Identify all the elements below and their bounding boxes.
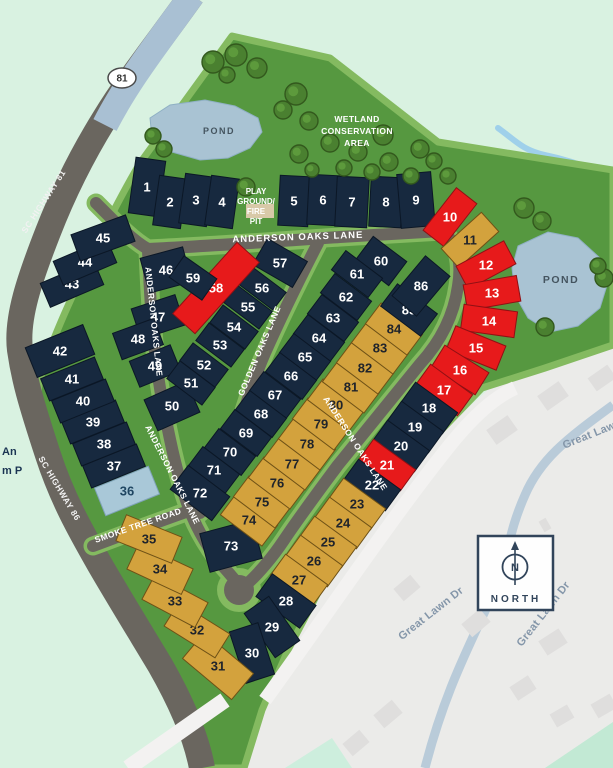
pond-right-label: POND	[543, 274, 579, 286]
north-label: NORTH	[491, 594, 542, 605]
tree-highlight-icon	[303, 115, 311, 123]
lot-number: 28	[279, 594, 293, 609]
north-arrow: N NORTH	[478, 536, 553, 610]
lot-number: 25	[321, 535, 335, 550]
lot-number: 38	[97, 437, 111, 452]
lot-number: 81	[344, 380, 358, 395]
lot-number: 29	[265, 620, 279, 635]
lot-7[interactable]: 7	[335, 176, 370, 228]
lot-number: 70	[223, 445, 237, 460]
lot-number: 7	[348, 195, 355, 210]
shield-number: 81	[116, 74, 128, 85]
tree-highlight-icon	[428, 155, 435, 162]
lot-number: 15	[469, 341, 483, 356]
tree-highlight-icon	[517, 201, 526, 210]
compass-n-letter: N	[511, 562, 519, 574]
svg-text:FIRE: FIRE	[247, 207, 266, 216]
highway-81-shield-icon: 81	[108, 68, 136, 88]
tree-highlight-icon	[405, 170, 412, 177]
tree-highlight-icon	[147, 130, 154, 137]
lot-number: 24	[336, 516, 351, 531]
clipped-text-fragment-1: An	[2, 446, 17, 458]
clipped-text-fragment-2: m P	[2, 465, 22, 477]
lot-number: 50	[165, 399, 179, 414]
lot-number: 56	[255, 281, 269, 296]
pond-left-label: POND	[203, 126, 235, 136]
lot-number: 17	[437, 383, 451, 398]
svg-text:AREA: AREA	[344, 138, 370, 148]
lot-number: 4	[218, 195, 226, 210]
lot-number: 10	[443, 210, 457, 225]
lot-number: 71	[207, 463, 221, 478]
tree-highlight-icon	[592, 260, 599, 267]
lot-number: 54	[227, 320, 242, 335]
lot-number: 74	[242, 513, 257, 528]
lot-number: 6	[319, 193, 326, 208]
lot-number: 63	[326, 311, 340, 326]
lot-number: 21	[380, 458, 394, 473]
lot-number: 19	[408, 420, 422, 435]
lot-number: 45	[96, 231, 110, 246]
lot-number: 51	[184, 376, 198, 391]
svg-text:WETLAND: WETLAND	[334, 114, 379, 124]
tree-highlight-icon	[442, 170, 449, 177]
lot-number: 33	[168, 594, 182, 609]
lot-number: 73	[224, 539, 238, 554]
lot-number: 11	[463, 233, 477, 248]
lot-number: 78	[300, 437, 314, 452]
lot-number: 48	[131, 332, 145, 347]
lot-number: 55	[241, 300, 255, 315]
lot-number: 75	[255, 495, 269, 510]
lot-number: 77	[285, 457, 299, 472]
tree-highlight-icon	[536, 215, 544, 223]
cul-de-sac	[224, 575, 254, 605]
lot-number: 36	[120, 484, 134, 499]
lot-number: 83	[373, 341, 387, 356]
lot-number: 84	[387, 322, 402, 337]
lot-number: 9	[412, 193, 419, 208]
lot-number: 41	[65, 372, 79, 387]
lot-number: 2	[166, 195, 173, 210]
tree-highlight-icon	[205, 54, 215, 64]
lot-number: 3	[192, 193, 199, 208]
svg-text:GROUND/: GROUND/	[237, 197, 276, 206]
lot-number: 76	[270, 476, 284, 491]
lot-number: 8	[382, 195, 389, 210]
tree-highlight-icon	[539, 321, 547, 329]
tree-highlight-icon	[158, 143, 165, 150]
site-plan-map: 1234567891011121314151617181920212223242…	[0, 0, 613, 768]
tree-highlight-icon	[250, 61, 259, 70]
lot-number: 27	[292, 573, 306, 588]
lot-number: 61	[350, 267, 364, 282]
tree-highlight-icon	[338, 162, 345, 169]
lot-number: 26	[307, 554, 321, 569]
tree-highlight-icon	[221, 69, 228, 76]
lot-number: 23	[350, 497, 364, 512]
lot-number: 66	[284, 369, 298, 384]
lot-number: 34	[153, 562, 168, 577]
lot-number: 20	[394, 439, 408, 454]
lot-number: 30	[245, 646, 259, 661]
lot-number: 40	[76, 394, 90, 409]
tree-highlight-icon	[383, 156, 391, 164]
lot-number: 57	[273, 256, 287, 271]
lot-6[interactable]: 6	[307, 174, 340, 226]
lot-number: 67	[268, 388, 282, 403]
lot-number: 1	[143, 180, 150, 195]
lot-number: 65	[298, 350, 312, 365]
lot-number: 60	[374, 254, 388, 269]
lot-number: 13	[485, 286, 499, 301]
lot-number: 72	[193, 486, 207, 501]
svg-text:PIT: PIT	[250, 217, 263, 226]
lot-number: 35	[142, 532, 156, 547]
lot-number: 37	[107, 459, 121, 474]
lot-number: 31	[211, 659, 225, 674]
lot-number: 59	[186, 271, 200, 286]
tree-highlight-icon	[228, 47, 238, 57]
tree-highlight-icon	[307, 165, 313, 171]
tree-highlight-icon	[324, 137, 332, 145]
lot-number: 39	[86, 415, 100, 430]
lot-number: 14	[482, 314, 497, 329]
lot-5[interactable]: 5	[278, 175, 311, 227]
tree-highlight-icon	[277, 104, 285, 112]
tree-highlight-icon	[366, 166, 373, 173]
tree-highlight-icon	[288, 86, 298, 96]
lot-number: 16	[453, 363, 467, 378]
lot-number: 53	[213, 338, 227, 353]
tree-highlight-icon	[414, 143, 422, 151]
lot-number: 64	[312, 331, 327, 346]
lot-number: 5	[290, 194, 297, 209]
lot-number: 69	[239, 426, 253, 441]
lot-number: 68	[254, 407, 268, 422]
lot-number: 42	[53, 344, 67, 359]
svg-text:PLAY: PLAY	[246, 187, 267, 196]
lot-number: 62	[339, 290, 353, 305]
svg-text:CONSERVATION: CONSERVATION	[321, 126, 393, 136]
lot-number: 12	[479, 258, 493, 273]
lot-number: 82	[358, 361, 372, 376]
lot-number: 18	[422, 401, 436, 416]
lot-number: 86	[414, 279, 428, 294]
tree-highlight-icon	[293, 148, 301, 156]
lot-number: 79	[314, 417, 328, 432]
lot-number: 52	[197, 358, 211, 373]
